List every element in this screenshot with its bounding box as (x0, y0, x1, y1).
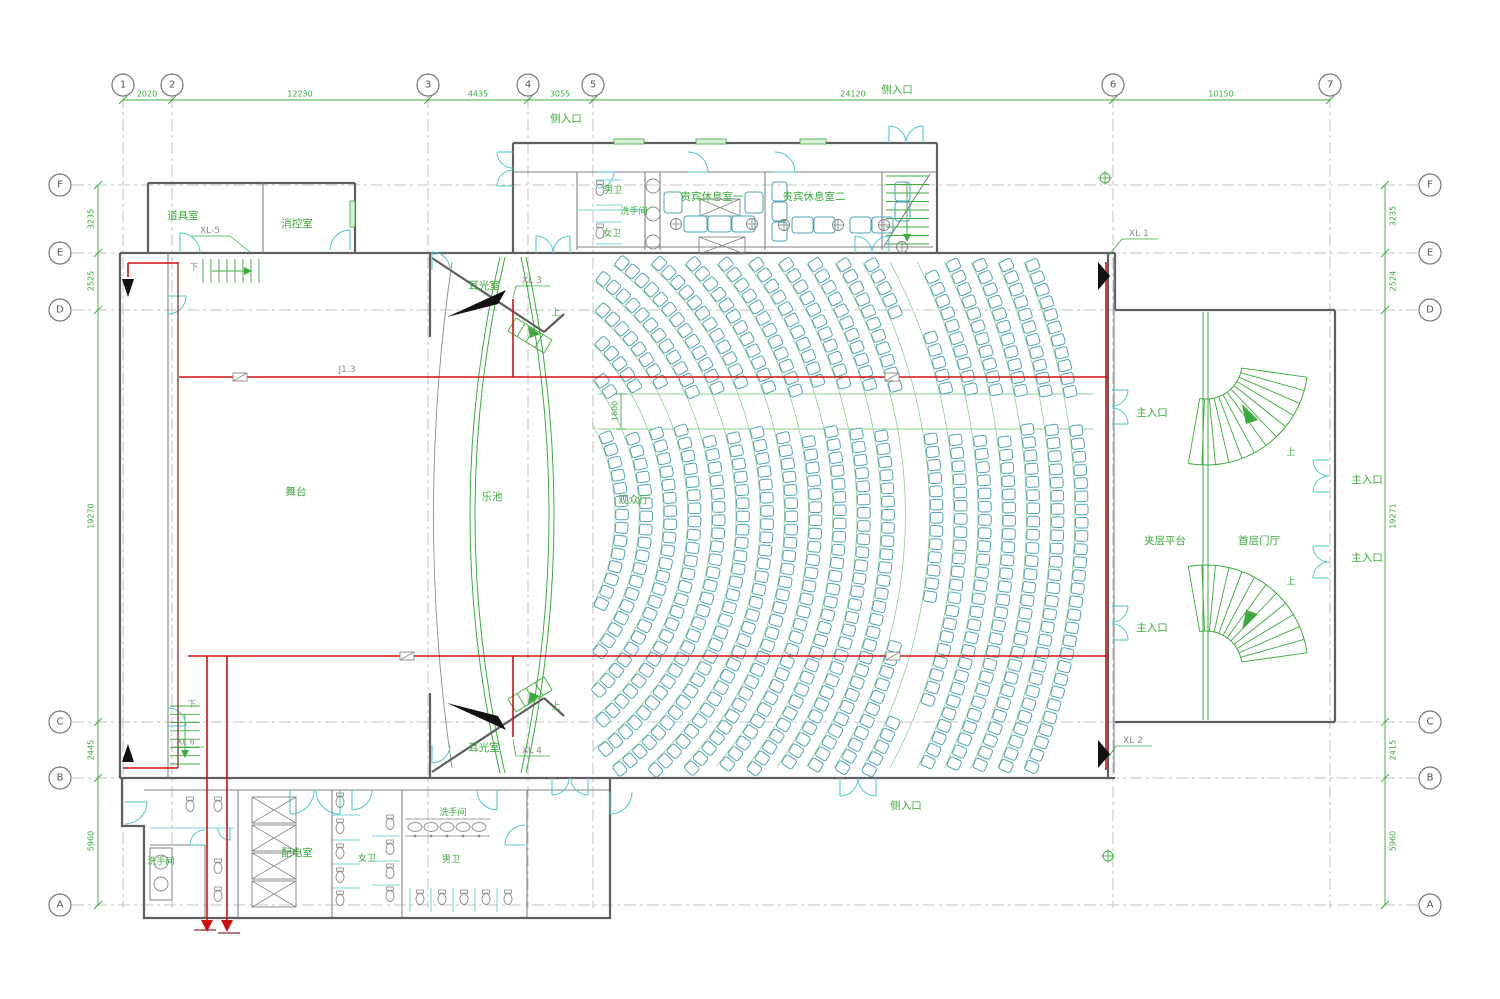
label-xl-2: XL 2 (1123, 736, 1143, 746)
toilet-fixture (416, 894, 424, 905)
seat (964, 631, 978, 644)
grid-bubble-row-right-C-text: C (1427, 717, 1434, 728)
seat (945, 319, 960, 333)
seat (782, 706, 798, 721)
sink (646, 179, 660, 193)
seat (734, 550, 748, 562)
seat (921, 693, 936, 707)
door-arc (168, 708, 186, 726)
seat (658, 557, 672, 570)
seat (708, 553, 722, 565)
seat (749, 596, 764, 609)
sofa (850, 217, 871, 233)
seat (970, 606, 984, 618)
stair-tread (544, 340, 552, 353)
seat (971, 319, 986, 333)
seat (973, 435, 987, 447)
seat (1027, 529, 1040, 540)
seat (613, 535, 627, 547)
seat (864, 257, 880, 272)
fan-stair-tread (1188, 567, 1199, 632)
seat (1002, 489, 1015, 500)
seat (762, 322, 778, 337)
label-washroom-top: 洗手间 (620, 205, 647, 217)
seat (1013, 295, 1028, 309)
seat (1013, 722, 1028, 736)
seat (857, 494, 870, 505)
seat (961, 644, 976, 657)
sink-oval (424, 823, 438, 832)
door-arc (840, 778, 858, 796)
seat (824, 425, 838, 438)
seat (761, 519, 774, 530)
seat (1018, 607, 1032, 619)
label-down-top-stair: 下 (189, 263, 198, 273)
stair-tread (508, 699, 516, 712)
seat (992, 619, 1006, 632)
seat (878, 456, 892, 468)
door-arc (536, 236, 553, 253)
seat (817, 621, 832, 634)
seat (784, 537, 797, 548)
seat (925, 578, 939, 590)
seat (785, 524, 798, 535)
seat (882, 509, 895, 520)
label-up-lobby-top: 上 (1286, 447, 1295, 458)
seat (760, 492, 773, 503)
leader-line (513, 740, 516, 756)
seat (1035, 647, 1049, 660)
fan-stair-tread (1188, 398, 1199, 463)
door-arc (610, 792, 632, 814)
door-arc (477, 790, 497, 810)
label-orchestra-pit: 乐池 (482, 490, 503, 503)
dim-text-2020: 2020 (137, 90, 157, 99)
sofa (684, 216, 707, 232)
seat (1003, 502, 1016, 513)
label-side-entrance-top-left: 侧入口 (550, 112, 582, 125)
seat (810, 374, 825, 388)
seat (799, 592, 813, 605)
seat (978, 488, 991, 499)
door-arc (571, 778, 588, 795)
seat (967, 708, 982, 722)
fan-stair-tread (1214, 568, 1229, 632)
seat (1007, 358, 1022, 371)
seat (930, 499, 943, 510)
grid-bubble-row-right-D-text: D (1426, 305, 1434, 316)
seat (1075, 478, 1088, 489)
sofa (745, 192, 763, 213)
seat (734, 471, 748, 483)
toilet-tank (337, 891, 344, 894)
seat (1022, 320, 1037, 334)
seat (929, 539, 942, 550)
dim-text-3055: 3055 (550, 90, 570, 99)
seat (779, 444, 793, 457)
toilet-fixture (386, 891, 394, 902)
seat (698, 357, 714, 372)
label-womens-toilet-bottom: 女卫 (358, 852, 376, 864)
seat (947, 592, 961, 604)
fan-stair-tread (1219, 572, 1242, 634)
seat (975, 448, 989, 460)
seat (1047, 437, 1061, 449)
seat (975, 332, 990, 346)
seat (674, 424, 689, 438)
seat (953, 474, 966, 485)
toilet-fixture (504, 894, 512, 905)
seat (940, 630, 955, 643)
seat (785, 498, 798, 509)
seat (756, 452, 770, 464)
seat (741, 621, 756, 635)
seat (809, 515, 822, 526)
seat (866, 626, 881, 639)
seat (1049, 464, 1062, 475)
seat (882, 523, 895, 534)
leader-line (513, 286, 516, 298)
seat (1054, 346, 1069, 359)
pipe-arrow (221, 920, 233, 932)
seat (745, 608, 760, 622)
seat (765, 626, 780, 640)
seat (1038, 723, 1053, 737)
seat (949, 331, 964, 345)
seat (1072, 570, 1085, 582)
seat (735, 537, 748, 549)
seat (833, 531, 846, 542)
seat (998, 581, 1012, 593)
door-arc (168, 296, 186, 314)
seat (1074, 464, 1087, 475)
label-xl-6: XL 6 (177, 738, 195, 747)
fan-stair-tread (1219, 397, 1242, 459)
seat (1032, 359, 1047, 372)
seat (975, 683, 990, 697)
seat (848, 737, 864, 752)
seat (978, 528, 991, 539)
seat (1021, 697, 1036, 711)
door-arc (352, 790, 372, 810)
sink (646, 207, 660, 221)
wall-line (432, 698, 544, 772)
seat-row-arc (890, 262, 954, 767)
toilet-fixture (460, 894, 468, 905)
window (350, 201, 355, 227)
door-arc (1313, 476, 1329, 492)
grid-bubble-row-left-A-text: A (57, 900, 64, 911)
seat (832, 478, 845, 489)
seat (1002, 476, 1015, 487)
seat (982, 357, 997, 370)
seat (878, 562, 892, 574)
seat (858, 651, 873, 665)
seat (854, 560, 868, 572)
seat (1063, 385, 1077, 398)
seat (943, 617, 957, 630)
seat (712, 528, 725, 539)
seat (763, 690, 779, 705)
seat (1050, 685, 1065, 698)
seat (726, 588, 741, 601)
stair-tread (517, 694, 525, 707)
toilet-fixture (386, 868, 394, 879)
fan-stair-tread (1209, 565, 1215, 631)
seat (615, 522, 628, 533)
seat (1025, 685, 1040, 699)
door-arc (1313, 546, 1329, 562)
grid-bubble-col-4-text: 4 (525, 80, 531, 91)
label-stage: 舞台 (286, 485, 307, 498)
sink-oval (408, 823, 422, 832)
seat (1018, 307, 1033, 321)
seat (809, 528, 822, 539)
seat (1021, 594, 1035, 606)
label-main-entrance-3: 主入口 (1351, 552, 1383, 564)
fixture-box (150, 848, 172, 900)
seat (1038, 385, 1052, 398)
seat (1057, 660, 1072, 673)
label-up-ear-top: 上 (551, 307, 560, 318)
seat (974, 580, 988, 592)
seat (688, 516, 701, 527)
seat (1024, 568, 1037, 580)
seat (1057, 359, 1072, 372)
seat (687, 529, 700, 540)
seat (739, 331, 755, 346)
grid-bubble-col-5-text: 5 (590, 80, 596, 91)
seat (700, 591, 715, 605)
toilet-tank (387, 815, 394, 818)
seat (833, 505, 846, 516)
window (696, 139, 726, 144)
seat (752, 583, 766, 596)
door-arc (1313, 562, 1329, 578)
seat (784, 643, 799, 657)
seat (996, 594, 1010, 606)
toilet-tank (337, 844, 344, 847)
seat (1049, 556, 1062, 567)
seat (876, 341, 891, 355)
seat (604, 572, 619, 586)
seat (760, 532, 773, 543)
seat (630, 444, 645, 458)
seat (782, 550, 796, 562)
seat (632, 562, 647, 575)
seat (1017, 710, 1032, 724)
label-mens-toilet-top: 男卫 (604, 185, 622, 196)
seat (663, 532, 676, 544)
seat (638, 537, 652, 549)
toilet-tank (483, 890, 490, 893)
label-down-bottom-stair: 下 (187, 700, 196, 710)
grid-bubble-row-left-F-text: F (57, 180, 63, 191)
seat (946, 694, 961, 708)
seat (964, 382, 979, 395)
seat (1001, 555, 1014, 566)
seat (663, 492, 676, 503)
seat (1035, 372, 1049, 385)
seat (661, 544, 675, 556)
seat (1051, 504, 1064, 515)
section-marker (122, 279, 134, 297)
seat (808, 541, 821, 552)
seat (1026, 542, 1039, 553)
stair-tread (517, 324, 525, 337)
seat (861, 762, 877, 777)
dim-text-5960: 5960 (87, 831, 96, 851)
seat (1075, 530, 1088, 541)
seat (930, 512, 943, 523)
seat (826, 583, 840, 596)
seat (1070, 425, 1084, 437)
seat (852, 441, 866, 453)
dim-text-19271: 19271 (1389, 503, 1398, 528)
seat (1041, 621, 1055, 634)
seat (1060, 647, 1074, 660)
seat (664, 506, 677, 517)
seat (977, 554, 990, 565)
seat (802, 580, 816, 593)
seat (877, 443, 891, 455)
seat (1045, 424, 1059, 436)
wall-outline (122, 778, 610, 918)
seat (836, 257, 852, 272)
toilet-tank (187, 797, 194, 800)
label-ear-light-room-top: 耳光室 (468, 279, 500, 292)
door-arc (125, 802, 147, 824)
label-xl-4: XL 4 (522, 746, 542, 756)
toilet-tank (337, 868, 344, 871)
seat (854, 454, 868, 466)
toilet-fixture (482, 894, 490, 905)
seat (662, 479, 676, 491)
toilet-fixture (596, 185, 604, 196)
seat (828, 570, 842, 582)
toilet-tank (387, 887, 394, 890)
dim-text-2524: 2524 (1389, 271, 1398, 291)
seat (935, 369, 950, 382)
label-xl-3: XL 3 (522, 276, 542, 286)
seat (833, 492, 846, 503)
seat (927, 565, 941, 577)
seat (1007, 659, 1022, 672)
toilet-tank (597, 181, 604, 184)
seat (687, 489, 700, 500)
seat (977, 475, 990, 486)
seat (979, 515, 992, 526)
seat (660, 465, 674, 478)
dim-text-2445: 2445 (87, 740, 96, 760)
seat (710, 541, 724, 553)
seat (978, 541, 991, 552)
sink-oval (440, 823, 454, 832)
label-mens-toilet-bottom: 男卫 (442, 854, 460, 865)
seat (881, 536, 894, 547)
seat (705, 448, 719, 461)
seat (1039, 295, 1054, 309)
seat (952, 460, 965, 472)
grid-bubble-col-3-text: 3 (425, 80, 431, 91)
seat (954, 669, 969, 683)
door-arc (889, 126, 906, 143)
seat (827, 438, 841, 450)
seat (954, 500, 967, 511)
seat (1051, 517, 1064, 528)
toilet-fixture (438, 894, 446, 905)
seat (927, 343, 942, 357)
seat (753, 439, 767, 452)
door-arc (906, 126, 923, 143)
seat (696, 661, 712, 676)
seat (938, 382, 953, 395)
seat (604, 443, 619, 457)
grid-bubble-col-6-text: 6 (1110, 80, 1116, 91)
seat (979, 345, 994, 359)
leader-line (230, 236, 250, 252)
seat (712, 515, 725, 526)
label-fire-control-room: 消控室 (281, 217, 313, 230)
seat (732, 458, 746, 470)
seat (781, 563, 795, 575)
seat (951, 566, 965, 578)
seat (769, 614, 784, 628)
seat (804, 448, 818, 460)
seat (856, 547, 869, 559)
seat (843, 268, 859, 283)
door-arc (432, 745, 450, 763)
seat (829, 452, 843, 464)
curve (475, 257, 505, 773)
seat (1004, 345, 1019, 358)
door-arc (497, 170, 513, 186)
seat (737, 511, 750, 522)
seat (854, 663, 869, 677)
label-side-entrance-bottom: 侧入口 (890, 799, 922, 812)
seat (949, 579, 963, 591)
grid-bubble-col-2-text: 2 (169, 80, 175, 91)
seat (954, 527, 967, 538)
sofa (792, 217, 813, 233)
seat (711, 488, 724, 499)
seat (836, 376, 851, 390)
seat (945, 605, 959, 618)
label-props-room: 道具室 (167, 209, 199, 222)
seat (755, 570, 769, 583)
seat (1063, 634, 1077, 647)
seat (783, 471, 797, 483)
seat (809, 502, 822, 513)
seat (1004, 671, 1019, 684)
curve (434, 262, 453, 768)
dim-text-12230: 12230 (287, 90, 312, 99)
toilet-fixture (336, 823, 344, 834)
grid-bubble-col-7-text: 7 (1327, 80, 1333, 91)
toilet-tank (215, 887, 222, 890)
seat (1022, 581, 1036, 593)
seat (1065, 622, 1079, 634)
label-up-ear-bottom: 上 (551, 701, 560, 712)
toilet-fixture (186, 801, 194, 812)
seat (1026, 476, 1039, 487)
seat (1051, 333, 1066, 346)
seat (1038, 634, 1052, 647)
toilet-tank (505, 890, 512, 893)
seat (994, 607, 1008, 619)
grid-bubble-row-right-A-text: A (1427, 900, 1434, 911)
label-side-entrance-top-right: 侧入口 (881, 83, 913, 96)
